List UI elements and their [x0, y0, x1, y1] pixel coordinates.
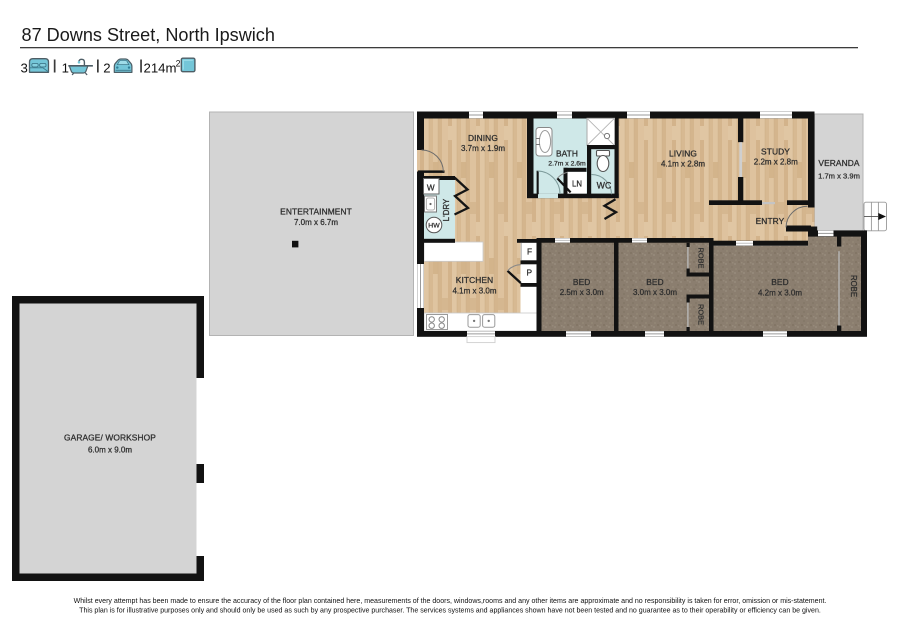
svg-text:BED: BED — [771, 277, 789, 287]
svg-text:Whilst every attempt has been: Whilst every attempt has been made to en… — [74, 598, 827, 605]
svg-text:6.0m x 9.0m: 6.0m x 9.0m — [88, 446, 132, 455]
svg-text:BED: BED — [573, 277, 591, 287]
svg-text:87 Downs Street, North Ipswich: 87 Downs Street, North Ipswich — [22, 25, 275, 45]
svg-text:LIVING: LIVING — [669, 149, 697, 159]
svg-text:1: 1 — [62, 61, 69, 76]
svg-text:ENTERTAINMENT: ENTERTAINMENT — [280, 207, 352, 217]
svg-text:2.5m x 3.0m: 2.5m x 3.0m — [560, 288, 604, 297]
svg-text:2.7m x 2.6m: 2.7m x 2.6m — [548, 161, 586, 168]
svg-text:W: W — [427, 183, 435, 192]
svg-text:STUDY: STUDY — [761, 147, 790, 157]
svg-text:F: F — [527, 247, 532, 257]
svg-text:2: 2 — [176, 59, 181, 69]
svg-text:VERANDA: VERANDA — [818, 158, 860, 168]
svg-text:LN: LN — [572, 180, 582, 189]
svg-text:This plan is for illustrative: This plan is for illustrative purposes o… — [79, 607, 821, 614]
svg-text:3: 3 — [21, 61, 28, 76]
svg-text:4.1m x 2.8m: 4.1m x 2.8m — [661, 160, 705, 169]
svg-text:L'DRY: L'DRY — [442, 198, 451, 221]
svg-text:BED: BED — [646, 277, 664, 287]
svg-text:P: P — [527, 268, 533, 278]
svg-text:3.7m x 1.9m: 3.7m x 1.9m — [461, 144, 505, 153]
svg-text:ROBE: ROBE — [849, 275, 858, 297]
svg-text:7.0m x 6.7m: 7.0m x 6.7m — [294, 218, 338, 227]
svg-text:4.2m x 3.0m: 4.2m x 3.0m — [758, 289, 802, 298]
svg-text:KITCHEN: KITCHEN — [456, 275, 493, 285]
svg-text:3.0m x 3.0m: 3.0m x 3.0m — [633, 288, 677, 297]
svg-text:ENTRY: ENTRY — [756, 216, 785, 226]
svg-text:BATH: BATH — [556, 149, 578, 159]
svg-text:HW: HW — [428, 223, 440, 230]
svg-text:4.1m x 3.0m: 4.1m x 3.0m — [452, 286, 496, 295]
svg-text:ROBE: ROBE — [697, 304, 706, 325]
svg-text:214m: 214m — [144, 61, 177, 76]
svg-text:ROBE: ROBE — [697, 248, 706, 269]
svg-text:1.7m x 3.9m: 1.7m x 3.9m — [818, 172, 860, 181]
svg-text:DINING: DINING — [468, 133, 498, 143]
svg-text:2: 2 — [103, 61, 110, 76]
svg-text:WC: WC — [597, 180, 612, 190]
svg-text:2.2m x 2.8m: 2.2m x 2.8m — [754, 158, 798, 167]
svg-text:GARAGE/ WORKSHOP: GARAGE/ WORKSHOP — [64, 433, 156, 443]
